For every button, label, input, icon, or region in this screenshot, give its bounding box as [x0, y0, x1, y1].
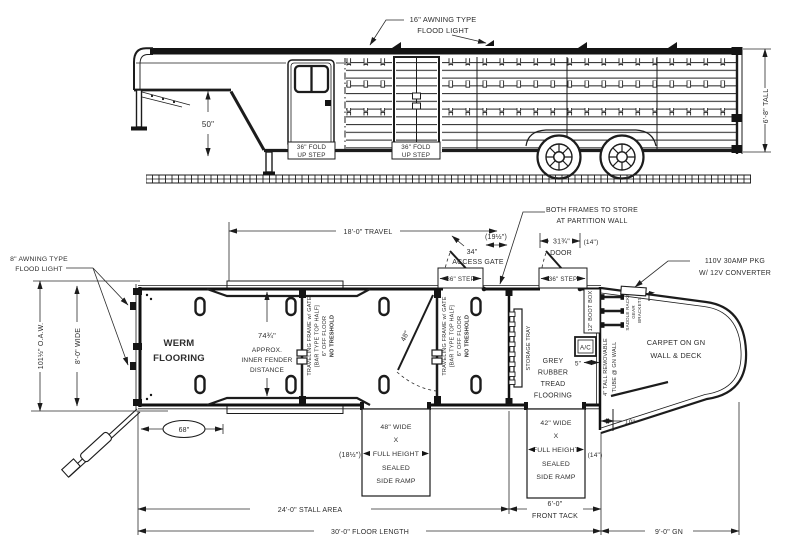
ramp48-gap-dim: (18½")	[339, 451, 361, 459]
partition-hinge	[506, 289, 513, 296]
rear-step-label-line2: UP STEP	[402, 152, 430, 159]
floor-length-dim-text: 30'-0" FLOOR LENGTH	[331, 529, 409, 536]
front-tack-dim-line2: FRONT TACK	[532, 513, 578, 520]
ramp48-line1: 48" WIDE	[380, 424, 411, 431]
rear-step-label-line1: 36" FOLD	[401, 144, 431, 151]
overall-width-dim-text: 101½" O.A.W.	[37, 323, 45, 370]
walk-door-side-view	[286, 57, 336, 149]
gate1-note-line1: TRAVELING FRAME w/ GATE	[307, 296, 313, 375]
boot-box-label: 12" BOOT BOX	[588, 291, 594, 332]
front-step-label-line2: UP STEP	[297, 152, 325, 159]
rear-flood-note-line2: FLOOD LIGHT	[15, 266, 63, 273]
inner-width-dim-text: 8'-0" WIDE	[75, 328, 82, 364]
step-box-2: 36" STEP	[539, 268, 587, 288]
traveling-gate-2: TRAVELING FRAME w/ GATE [BAR TYPE TOP HA…	[397, 290, 471, 404]
flood-light-icon	[130, 362, 136, 370]
rivet-dot	[146, 294, 148, 296]
trailer-blueprint: 36" FOLD UP STEP 36" FOLD UP STEP 50" 6'…	[0, 0, 800, 558]
removable-tube	[611, 382, 668, 396]
tie-ring	[287, 376, 296, 393]
grey-floor-line2: RUBBER	[538, 370, 568, 377]
partition-hinge	[506, 398, 513, 405]
drop-height-dimension: 50"	[202, 92, 214, 157]
overall-width-dimension: 101½" O.A.W.	[37, 281, 45, 411]
height-dimension: 6'-8" TALL	[743, 49, 771, 152]
rear-hinge	[732, 47, 743, 55]
step2-label: 36" STEP	[549, 276, 578, 283]
ramp42-line3: FULL HEIGHT	[533, 447, 579, 454]
ramp48-line5: SIDE RAMP	[376, 478, 415, 485]
tie-ring	[472, 376, 481, 393]
access-gate-width: 34"	[467, 249, 478, 256]
trailer-drawing-page: 36" FOLD UP STEP 36" FOLD UP STEP 50" 6'…	[0, 0, 800, 558]
ramp42-line2: X	[554, 433, 559, 440]
step-box-1: 36" STEP	[438, 268, 483, 288]
access-gate-callout: 34" ACCESS GATE (19½")	[452, 233, 507, 266]
fender-dim-value: 74¾"	[258, 331, 276, 340]
door-label: DOOR	[550, 250, 572, 257]
gate-latch	[432, 350, 442, 356]
drop-wall-line	[231, 92, 264, 151]
gate1-note-line4: NO TRESHOLD	[330, 315, 336, 357]
frame-storage-rack: STORAGE TRAY	[509, 309, 532, 387]
ac-unit: A/C 5"	[575, 337, 599, 368]
werm-flooring-line2: FLOORING	[153, 353, 205, 364]
door-gap-dim: (14")	[584, 239, 599, 246]
rear-gate-open	[62, 409, 140, 477]
storage-tray-label: STORAGE TRAY	[526, 325, 532, 370]
ramp42-line4: SEALED	[542, 461, 570, 468]
rear-hinge	[133, 288, 142, 295]
front-tack-dimension: 6'-0" FRONT TACK	[509, 501, 601, 520]
front-cap-inner-line	[140, 55, 153, 91]
clearance-light-icon	[578, 42, 587, 48]
ramp42-gap-dim: (14")	[588, 452, 603, 459]
rear-balloon-dim-text: 68"	[179, 427, 190, 434]
saddle-racks: SADDLE RACKS GEAR BRACKETS	[601, 293, 642, 330]
rivet-dot	[146, 398, 148, 400]
floor-length-dimension: 30'-0" FLOOR LENGTH	[138, 529, 601, 536]
tie-ring	[380, 298, 389, 315]
tie-ring	[380, 376, 389, 393]
saddle-rack-label-2: GEAR	[631, 305, 636, 319]
tube-note-line1: 4" TALL REMOVABLE	[603, 338, 609, 396]
frames-note-line1: BOTH FRAMES TO STORE	[546, 207, 638, 214]
ac-label: A/C	[580, 345, 591, 352]
converter-box	[621, 286, 646, 296]
travel-dimension: 18'-0" TRAVEL	[229, 229, 497, 236]
gn-step-dim-text: 10"	[625, 419, 636, 426]
ramp48-line3: FULL HEIGHT	[373, 451, 419, 458]
gate2-note-line2: [BAR TYPE TOP HALF]	[450, 305, 456, 367]
wheel	[538, 136, 581, 179]
floor-plan-view: TRAVELING FRAME w/ GATE [BAR TYPE TOP HA…	[10, 207, 771, 536]
gate2-note-line3: 6" OFF FLOOR	[457, 316, 463, 356]
tie-ring	[287, 298, 296, 315]
stall-area-dimension: 24'-0" STALL AREA	[138, 507, 509, 514]
flood-light-note-line1: 16" AWNING TYPE	[410, 15, 477, 24]
frames-note-line2: AT PARTITION WALL	[556, 218, 627, 225]
door-latch	[413, 103, 421, 109]
rear-hinge	[732, 114, 743, 122]
tie-ring	[196, 376, 205, 393]
ramp48-line2: X	[394, 437, 399, 444]
rivet-dot	[150, 394, 152, 396]
carpet-note-line2: WALL & DECK	[650, 351, 701, 360]
slat-door-side-view	[392, 56, 442, 152]
gn-length-dimension: 9'-0" GN	[601, 529, 739, 536]
ramp42-line5: SIDE RAMP	[536, 474, 575, 481]
gn-length-dim-text: 9'-0" GN	[655, 529, 683, 536]
rear-hinge	[133, 343, 142, 350]
grey-floor-line3: TREAD	[541, 381, 566, 388]
grey-floor-line4: FLOORING	[534, 393, 572, 400]
clearance-light-icon	[485, 40, 494, 46]
gate-swing-arc	[397, 372, 436, 391]
step1-label: 36" STEP	[446, 276, 475, 283]
travel-dim-text: 18'-0" TRAVEL	[344, 229, 393, 236]
power-note-line1: 110V 30AMP PKG	[705, 258, 765, 265]
gate-latch	[297, 358, 307, 364]
power-note-line2: W/ 12V CONVERTER	[699, 270, 771, 277]
rear-flood-light-callout: 8" AWNING TYPE FLOOD LIGHT	[10, 256, 128, 365]
access-gate-label: ACCESS GATE	[452, 259, 504, 266]
saddle-rack-label-1: SADDLE RACKS	[625, 293, 630, 330]
gate-swing-dim-text: 48"	[400, 330, 411, 343]
ramp48-line4: SEALED	[382, 465, 410, 472]
drop-dim-text: 50"	[202, 120, 214, 129]
rear-balloon-dimension: 68"	[141, 421, 223, 438]
front-tack-dim-line1: 6'-0"	[548, 501, 563, 508]
inner-width-dimension: 8'-0" WIDE	[75, 286, 82, 406]
clearance-light-icon	[392, 42, 401, 48]
wheel	[601, 136, 644, 179]
power-note-callout: 110V 30AMP PKG W/ 12V CONVERTER	[635, 258, 771, 287]
tie-ring	[472, 298, 481, 315]
rear-hinge	[732, 145, 743, 153]
flood-light-icon	[130, 302, 136, 310]
ac-gap-dim-text: 5"	[575, 361, 582, 368]
gate2-note-line1: TRAVELING FRAME w/ GATE	[442, 296, 448, 375]
door-width-dim: 31¾"	[553, 239, 570, 246]
side-elevation-view: 36" FOLD UP STEP 36" FOLD UP STEP 50" 6'…	[131, 15, 771, 183]
landing-jack	[263, 152, 275, 176]
stall-area-dim-text: 24'-0" STALL AREA	[278, 507, 343, 514]
side-ramp-48: 48" WIDE X FULL HEIGHT SEALED SIDE RAMP	[362, 409, 430, 496]
gate1-note-line2: [BAR TYPE TOP HALF]	[315, 305, 321, 367]
saddle-rack-label-3: BRACKETS	[637, 297, 642, 323]
flood-light-callout: 16" AWNING TYPE FLOOD LIGHT	[370, 15, 486, 45]
roof-line	[150, 48, 741, 55]
door-handle	[325, 100, 331, 106]
fender-flare-top	[227, 281, 343, 289]
access-gate-gap-dim: (19½")	[485, 233, 507, 241]
traveling-gate-1: TRAVELING FRAME w/ GATE [BAR TYPE TOP HA…	[297, 290, 336, 404]
step-box-rear: 36" FOLD UP STEP	[392, 142, 440, 159]
clearance-light-icon	[668, 42, 677, 48]
tube-note-line2: TUBE @ GN WALL	[612, 342, 618, 393]
fender-dim-line1: APPROX.	[252, 347, 282, 354]
step-box-front: 36" FOLD UP STEP	[288, 142, 335, 159]
fender-flare-bottom	[227, 406, 343, 414]
rear-flood-note-line1: 8" AWNING TYPE	[10, 256, 68, 263]
door-latch	[413, 93, 421, 99]
ground-line	[146, 175, 751, 183]
gate-latch	[432, 358, 442, 364]
flood-light-note-line2: FLOOD LIGHT	[417, 26, 469, 35]
rear-hinge	[133, 399, 142, 406]
grey-floor-line1: GREY	[543, 358, 564, 365]
fender-dim-line2: INNER FENDER	[241, 357, 292, 364]
gooseneck-coupler	[131, 90, 190, 131]
gate1-note-line3: 6" OFF FLOOR	[322, 316, 328, 356]
rivet-dot	[150, 298, 152, 300]
gate-latch	[297, 350, 307, 356]
gate2-note-line4: NO TRESHOLD	[465, 315, 471, 357]
side-ramp-42: 42" WIDE X FULL HEIGHT SEALED SIDE RAMP	[527, 409, 585, 498]
werm-flooring-line1: WERM	[164, 338, 195, 349]
fender-dim-line3: DISTANCE	[250, 367, 284, 374]
carpet-note-line1: CARPET ON GN	[647, 338, 706, 347]
height-dim-text: 6'-8" TALL	[761, 89, 770, 124]
inner-fender-dimension: 74¾" APPROX. INNER FENDER DISTANCE	[241, 292, 292, 396]
tie-ring	[196, 298, 205, 315]
ramp42-line1: 42" WIDE	[540, 420, 571, 427]
front-step-label-line1: 36" FOLD	[297, 144, 327, 151]
